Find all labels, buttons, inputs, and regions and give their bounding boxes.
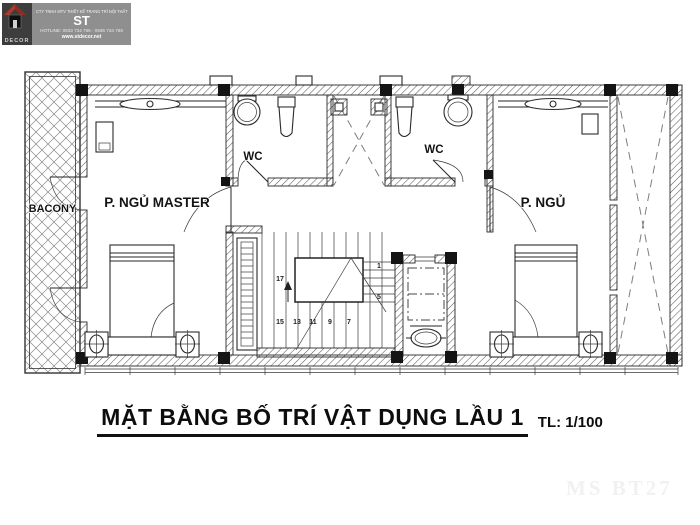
light-well-center: [331, 96, 387, 185]
stair-step-number: 15: [276, 319, 284, 326]
light-well-right: [618, 97, 668, 353]
stair-step-number: 13: [293, 319, 301, 326]
stair-step-number: 1: [377, 263, 381, 270]
master-bedroom-furniture: [84, 99, 226, 359]
balcony-label: BACONY: [29, 203, 77, 215]
floor-plan-page: DECOR CTY TNHH MTV THIẾT KẾ TRANG TRÍ NỘ…: [0, 0, 700, 525]
drawing-title: MẶT BẰNG BỐ TRÍ VẬT DỤNG LẦU 1: [97, 404, 528, 437]
drawing-title-bar: MẶT BẰNG BỐ TRÍ VẬT DỤNG LẦU 1 TL: 1/100: [0, 404, 700, 437]
service-nook: [391, 252, 457, 363]
stair-step-number: 5: [377, 294, 381, 301]
floor-plan-drawing: 1 5 7 9 11 13 15 17: [0, 0, 700, 525]
wc-left-fixtures: [234, 96, 295, 137]
watermark-text: MS BT27: [566, 476, 673, 501]
stair-step-number: 7: [347, 319, 351, 326]
staircase: 1 5 7 9 11 13 15 17: [237, 232, 395, 357]
bedroom-label: P. NGỦ: [521, 195, 566, 210]
stair-step-number: 17: [276, 276, 284, 283]
drawing-scale: TL: 1/100: [538, 414, 603, 437]
wc-left-label: WC: [243, 151, 262, 163]
wc-right-fixtures: [396, 95, 472, 137]
bedroom-furniture: [489, 99, 608, 359]
wc-right-label: WC: [424, 144, 443, 156]
stair-step-number: 11: [309, 319, 317, 326]
balcony-area: [25, 72, 80, 373]
stair-step-number: 9: [328, 319, 332, 326]
master-bedroom-label: P. NGỦ MASTER: [104, 195, 210, 210]
bottom-windows: [85, 367, 678, 375]
